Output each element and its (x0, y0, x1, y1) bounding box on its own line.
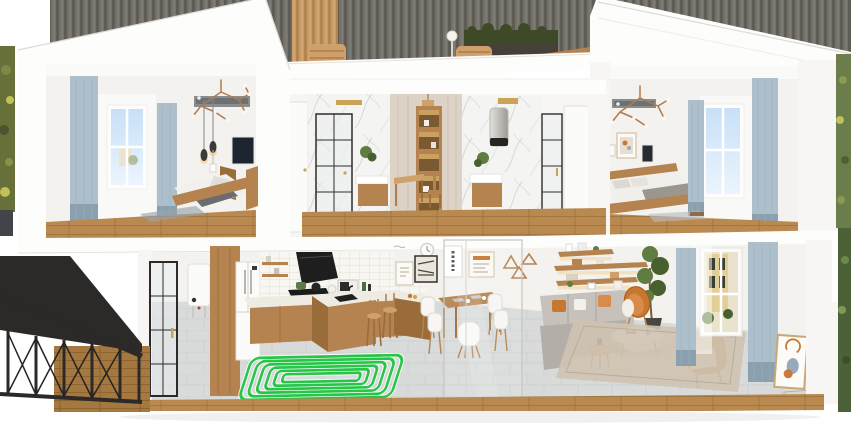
living-room (540, 242, 812, 401)
curtain-right (752, 78, 778, 230)
cutaway-scene (0, 0, 851, 425)
bedroom-left-interior (46, 64, 258, 244)
door-handle (303, 168, 306, 171)
fruit (408, 294, 412, 298)
sheer-curtain (694, 246, 712, 354)
white-cushion (574, 299, 586, 310)
dresser (246, 166, 258, 210)
gallery-frame (396, 262, 413, 285)
green-pot (296, 282, 306, 289)
ceiling-vent (498, 98, 518, 104)
bedroom-right-interior (606, 66, 800, 244)
orange-cushion (598, 295, 611, 307)
terrace-lamp (447, 31, 457, 41)
curtain-left (70, 76, 98, 224)
right-cut-wall (798, 60, 838, 244)
orange-cushion (552, 300, 566, 312)
wall-tv (232, 137, 254, 164)
fur-throw (622, 299, 634, 317)
curtain-left-living (676, 248, 696, 366)
ground-shadow (120, 411, 820, 423)
gallery-frame-dark (415, 256, 437, 282)
ceiling-light (336, 100, 362, 105)
sheer-curtain (700, 96, 752, 220)
curtain-right (157, 103, 177, 221)
foliage-left-edge (0, 46, 15, 236)
ground-floor (138, 240, 838, 419)
pendant-lamp (422, 100, 434, 107)
boiler-dial[interactable] (192, 298, 196, 302)
wall-panel (642, 145, 653, 162)
kettle (328, 285, 336, 293)
curtain-left (688, 100, 704, 216)
vanity-cabinet (358, 184, 388, 206)
bottle (362, 282, 366, 291)
glass-partition (440, 240, 526, 419)
books-on-floor (690, 212, 704, 216)
pan (312, 283, 321, 292)
house-cutaway-render (0, 0, 851, 425)
entry-glass-door[interactable] (150, 262, 177, 396)
basin-top (470, 174, 502, 183)
dark-object-edge (0, 210, 13, 236)
sheer-curtain (96, 94, 156, 220)
door-handle[interactable] (171, 328, 174, 338)
middle-block (282, 78, 606, 258)
fridge-display (252, 266, 257, 270)
lit-shelf-unit (416, 106, 442, 226)
vanity-top (356, 176, 388, 184)
vanity-cabinet (472, 183, 502, 207)
black-metal-staircase (0, 256, 150, 412)
curtain-right-living (748, 242, 778, 382)
leaning-art-frame (774, 335, 808, 389)
